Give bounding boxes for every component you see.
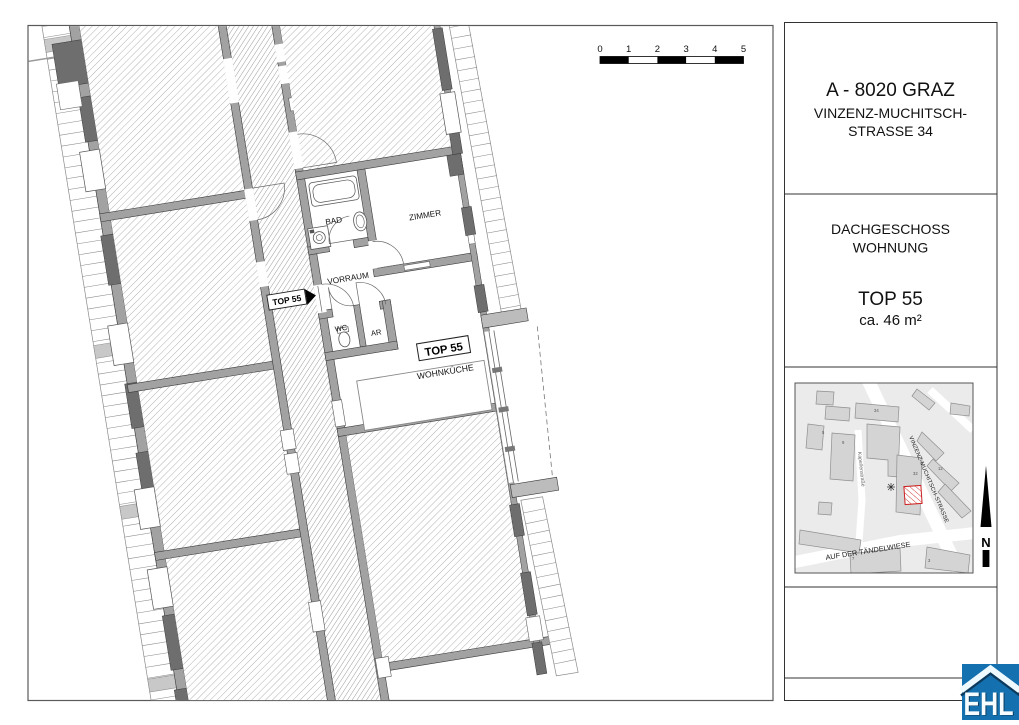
svg-text:2: 2: [655, 44, 660, 55]
svg-text:N: N: [981, 535, 990, 550]
svg-text:TOP 55: TOP 55: [858, 289, 923, 310]
svg-text:AR: AR: [370, 327, 382, 338]
svg-text:12: 12: [938, 466, 943, 471]
svg-text:4: 4: [712, 44, 717, 55]
svg-text:EHL: EHL: [964, 686, 1014, 720]
svg-text:VINZENZ-MUCHITSCH-: VINZENZ-MUCHITSCH-: [814, 105, 968, 121]
svg-text:5: 5: [741, 44, 746, 55]
svg-text:DACHGESCHOSS: DACHGESCHOSS: [831, 221, 950, 237]
svg-text:1: 1: [626, 44, 631, 55]
svg-text:STRASSE 34: STRASSE 34: [848, 123, 933, 139]
svg-text:WOHNUNG: WOHNUNG: [853, 240, 928, 256]
svg-text:ca. 46 m²: ca. 46 m²: [859, 312, 922, 329]
svg-text:34: 34: [874, 408, 879, 413]
svg-text:3: 3: [683, 44, 688, 55]
svg-text:32: 32: [913, 471, 918, 476]
svg-text:0: 0: [597, 44, 602, 55]
svg-text:A - 8020 GRAZ: A - 8020 GRAZ: [826, 80, 955, 101]
